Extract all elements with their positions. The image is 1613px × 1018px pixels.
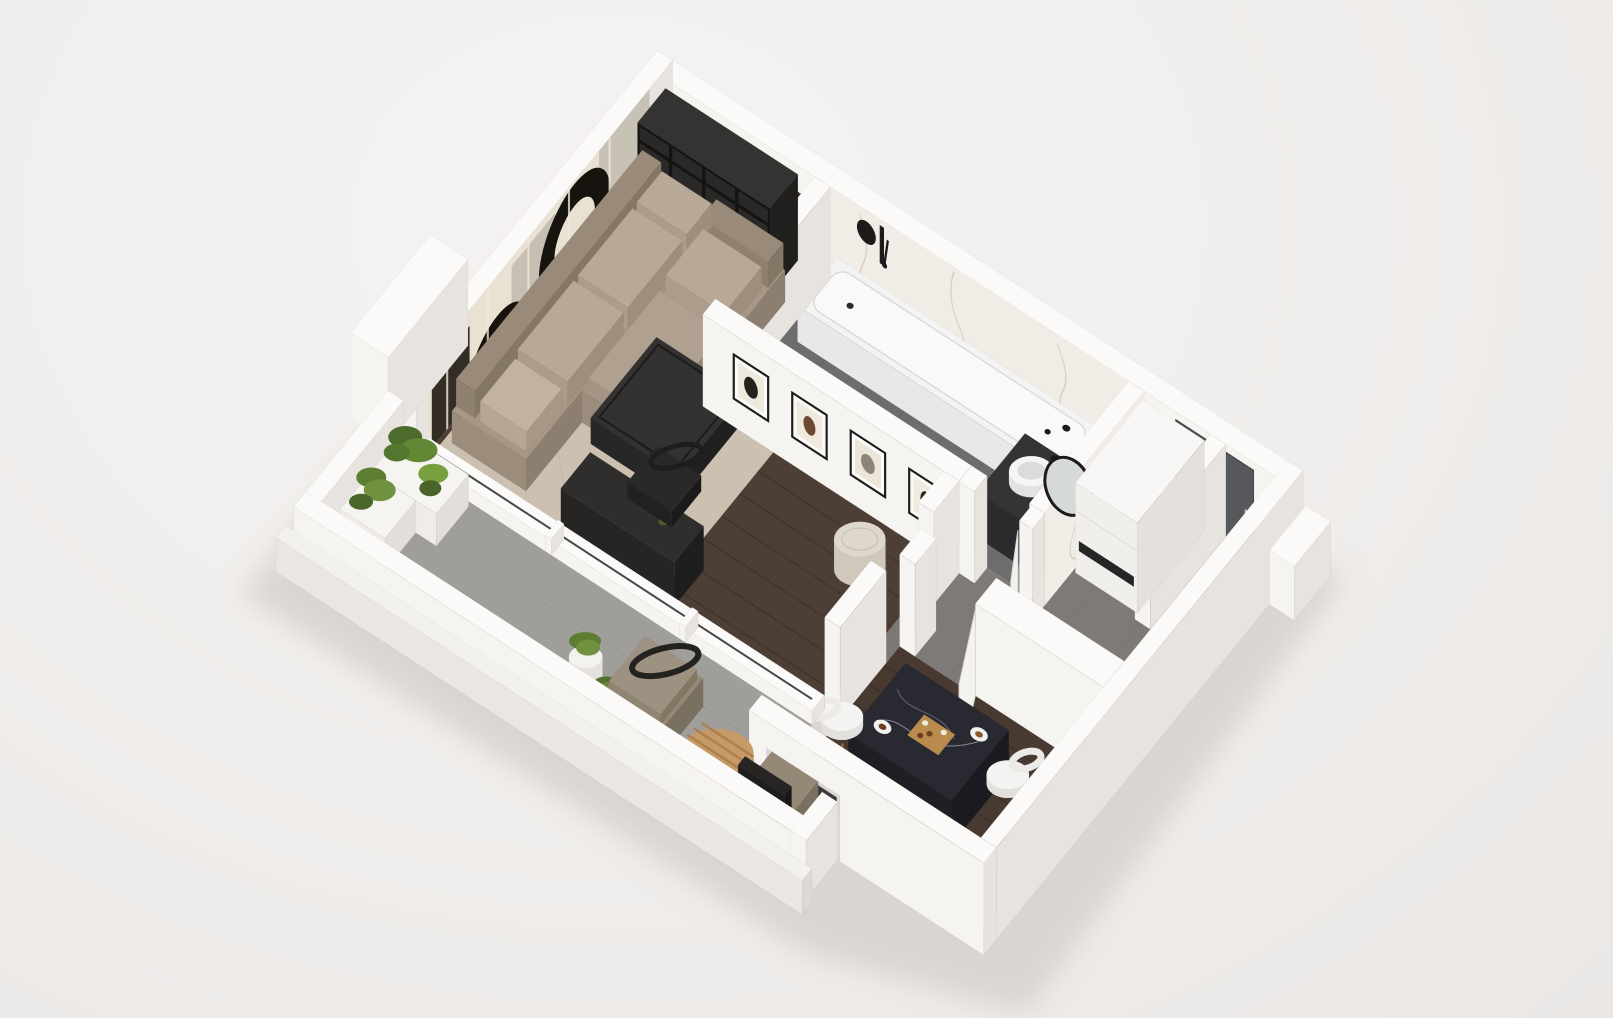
kitchen-wall-west-piece bbox=[900, 529, 937, 657]
planter-plant-4 bbox=[384, 443, 410, 461]
planter-plant-5 bbox=[419, 480, 441, 496]
kitchen-chair-sw bbox=[821, 702, 864, 740]
isometric-floor-plan-render bbox=[0, 0, 1613, 1018]
bath-door-wall-west bbox=[959, 466, 987, 584]
sink-basin bbox=[1017, 462, 1045, 480]
floor-plan-stage bbox=[0, 0, 1613, 1018]
pot-white-plant-2 bbox=[576, 640, 600, 656]
planter2-plant-3 bbox=[349, 494, 373, 510]
